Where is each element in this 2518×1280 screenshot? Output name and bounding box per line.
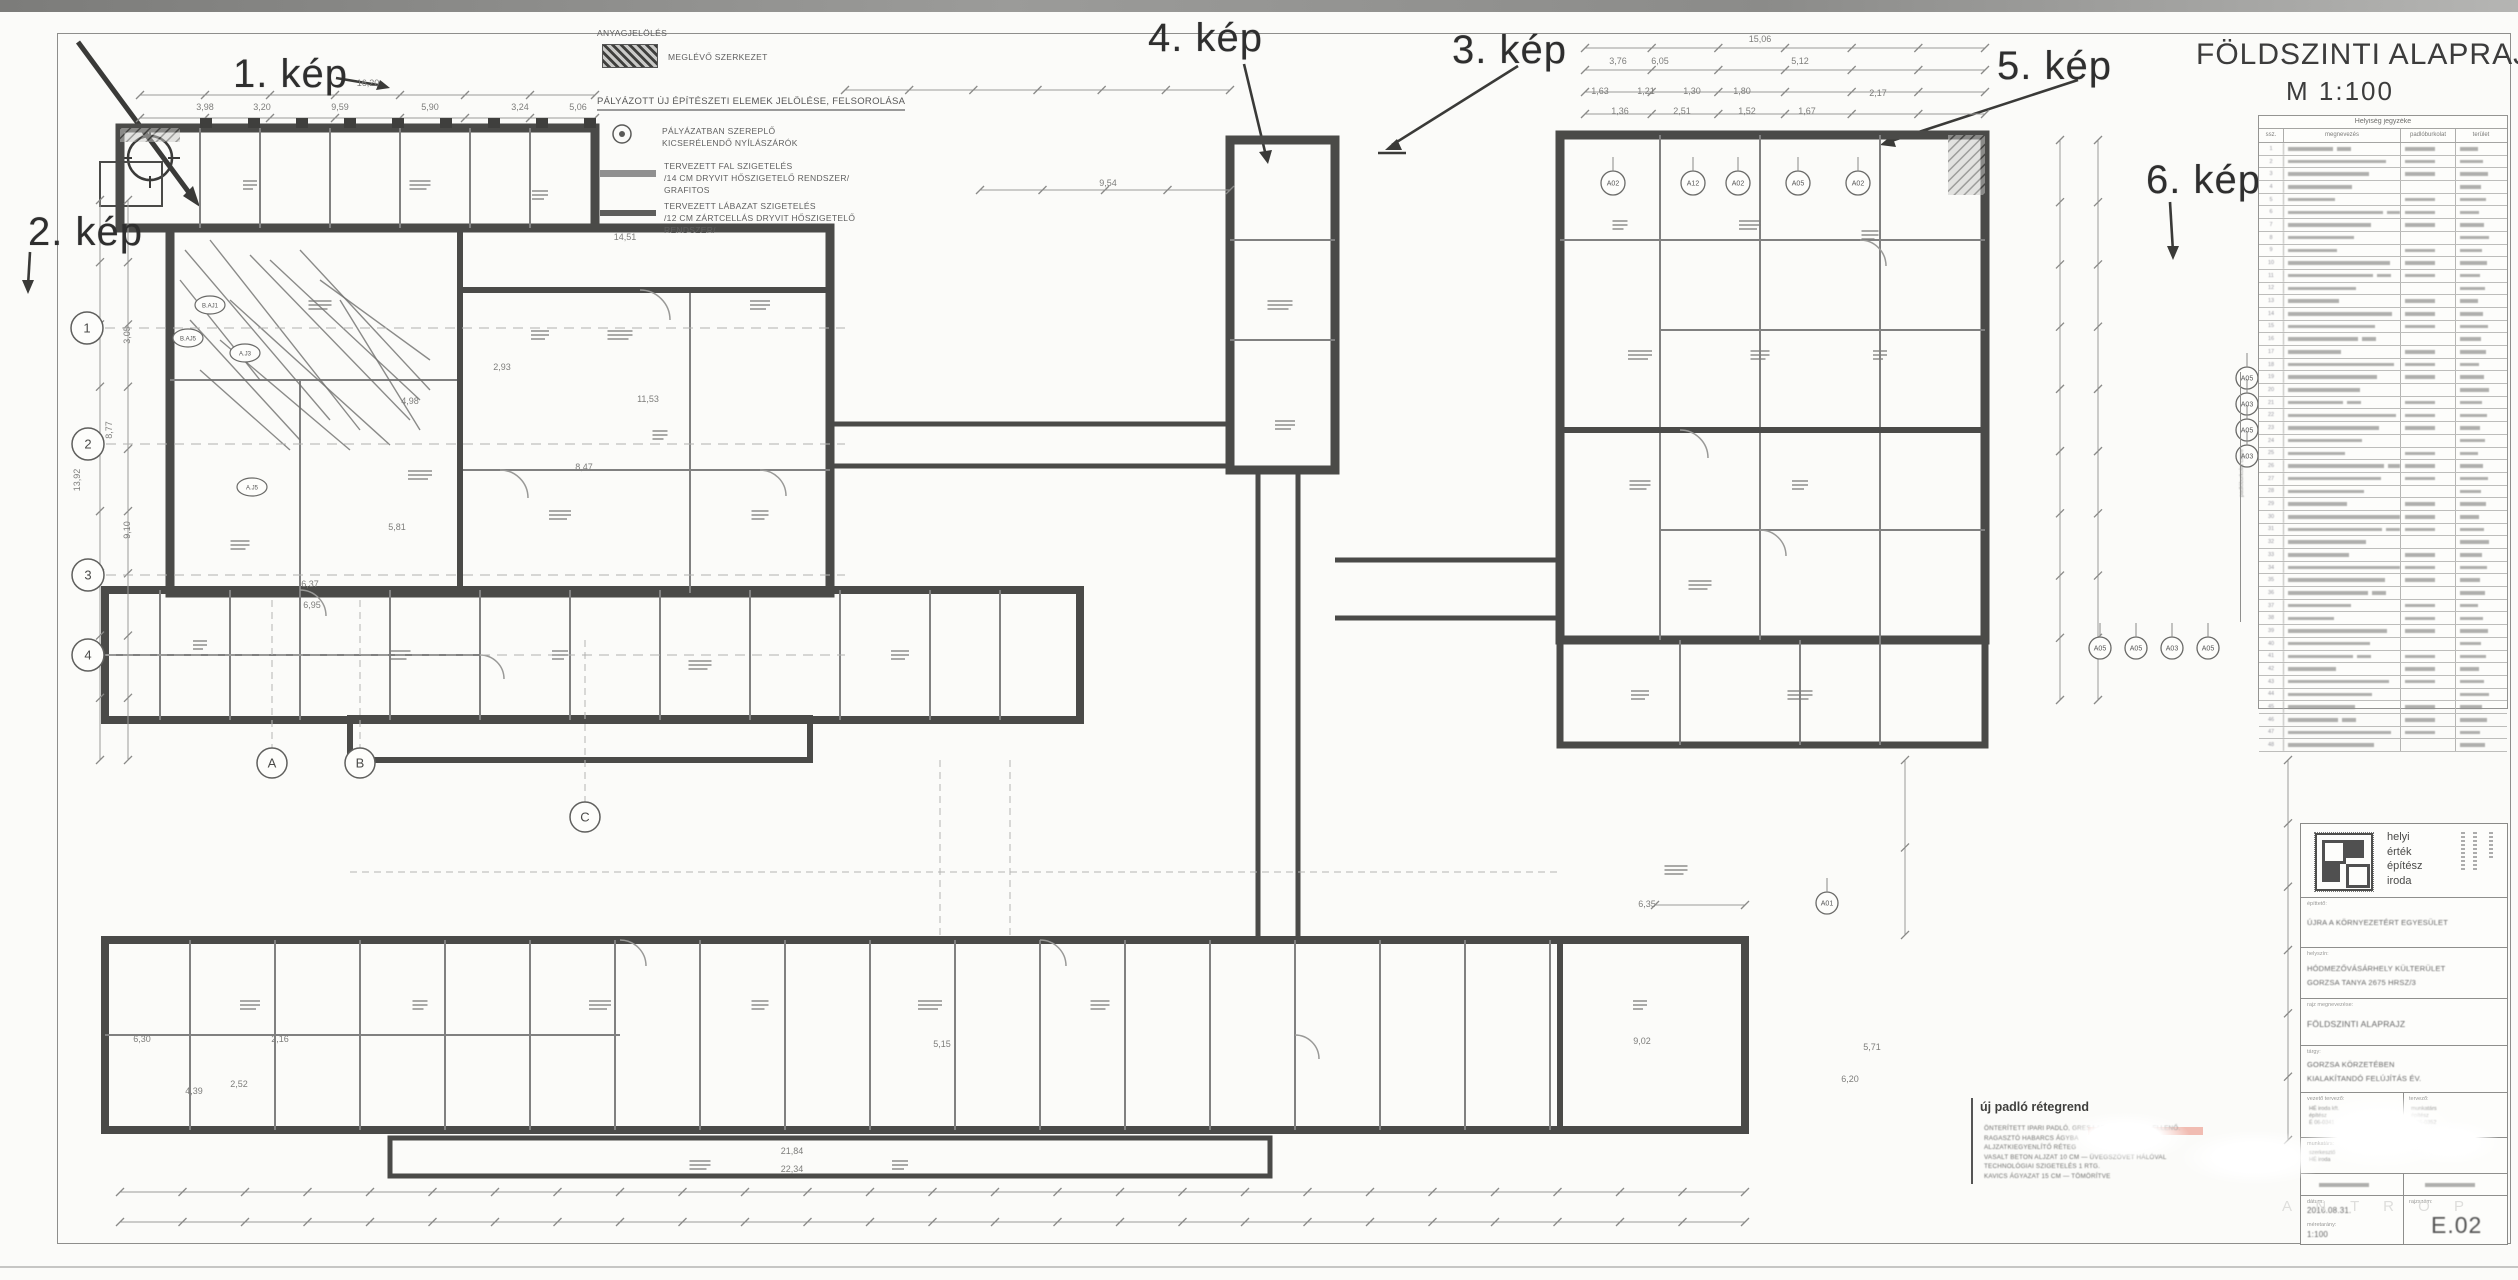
room-label-stub [1665,869,1688,871]
window-marker-label: A01 [1821,901,1834,908]
title-block: helyiérték építésziroda építtető: ÚJRA A… [2300,823,2508,1245]
table-row: 28 [2259,486,2507,499]
dimension-label: 5,15 [933,1039,951,1049]
col-area: terület [2456,129,2506,142]
interior-thick-walls [460,228,1985,1130]
room-label-stub [1739,220,1761,222]
room-schedule-rows: 1 2 3 4 5 6 7 8 9 10 11 12 13 [2259,143,2507,752]
associate-lines: szerkesztőHÉ iroda [2309,1150,2335,1164]
room-label-stub [891,654,909,656]
room-label-stub [653,434,668,436]
notes-line: ÖNTERÍTETT IPARI PADLÓ, GRES LAP BURKOLA… [1984,1125,2180,1132]
room-label-stub [231,540,250,542]
room-label-stub [1689,588,1708,590]
room-label-stub [1633,1004,1647,1006]
logo-side-text3 [2489,832,2493,860]
architect-lines: munkatársépítészÉ 06-0352 [2411,1106,2437,1127]
room-label-stub [1630,484,1651,486]
window-marker-label: A02 [1732,181,1745,188]
room-label-stub [1268,304,1293,306]
replaced-opening-symbol-icon [608,120,636,148]
room-label-stub [1268,300,1293,302]
room-label-stub [689,668,708,670]
pilaster [248,118,260,128]
room-label-stub [1788,694,1813,696]
room-label-stub [408,478,428,480]
room-label-stub [1792,488,1804,490]
wall-hatch-sample [1948,135,1985,195]
room-label-stub [193,648,203,650]
room-label-stub [752,514,769,516]
legend-existing-label: MEGLÉVŐ SZERKEZET [668,52,768,62]
table-row: 6 [2259,206,2507,219]
table-row: 39 [2259,625,2507,638]
room-label-stub [1630,488,1647,490]
logo-side-text [2461,832,2465,872]
room-label-stub [1628,354,1652,356]
dimension-label: 4,39 [185,1086,203,1096]
room-label-stub [1275,424,1295,426]
schedule-group-bracket: padlóburkolat csere [2240,372,2255,622]
room-label-stub [1633,1000,1647,1002]
client-label: építtető: [2307,901,2327,907]
table-row: 20 [2259,384,2507,397]
table-row: 5 [2259,194,2507,207]
window-marker-label: A05 [1792,181,1805,188]
legend-wall-line2: /14 CM DRYVIT HŐSZIGETELŐ RENDSZER/ [664,173,849,183]
room-label-stub [589,1008,607,1010]
room-label-stub [752,510,769,512]
dimension-label: 5,81 [388,522,406,532]
existing-structure-swatch-icon [602,44,658,68]
room-label-stub [1739,224,1761,226]
room-label-stub [1665,873,1684,875]
room-label-stub [1689,580,1712,582]
building-bottom-walls [105,940,1745,1176]
room-label-stub [689,664,712,666]
room-label-stub [1862,238,1875,240]
table-row: 43 [2259,676,2507,689]
room-label-stub [240,1008,256,1010]
room-label-stub [410,180,431,182]
table-row: 19 [2259,371,2507,384]
pilaster [344,118,356,128]
grid-bubble-label: B [356,756,365,771]
table-row: 23 [2259,422,2507,435]
dimension-label: 6,95 [303,600,321,610]
col-number: ssz. [2259,129,2284,142]
subject-label: tárgy: [2307,1049,2321,1055]
room-label-stub [690,1168,707,1170]
grid-bubble-label: C [580,810,589,825]
room-label-stub [532,190,548,192]
scanned-floorplan-sheet: 16,203,983,209,595,903,245,069,5414,5115… [0,0,2518,1280]
pilaster [584,118,596,128]
pilaster [440,118,452,128]
dimension-label: 8,77 [104,421,114,439]
room-label-stub [408,470,432,472]
room-label-stub [1739,228,1757,230]
table-row: 48 [2259,739,2507,752]
dimension-label: 6,05 [1651,56,1669,66]
pilaster [488,118,500,128]
legend-wall-line3: GRAFITOS [664,185,710,195]
room-label-stub [750,304,770,306]
title-block-associate-row: munkatárs: szerkesztőHÉ iroda [2301,1138,2507,1174]
room-label-stub [690,1164,711,1166]
window-markers: A02A12A02A05A02A05A03A05A03A05A05A03A05A… [173,157,2258,914]
room-label-stub [1751,350,1770,352]
table-row: 45 [2259,701,2507,714]
scale-value: 1:100 [2307,1230,2328,1239]
dimension-label: 1,80 [1733,86,1751,96]
table-row: 33 [2259,549,2507,562]
room-label-stub [240,1000,260,1002]
room-label-stub [1628,350,1652,352]
table-row: 3 [2259,168,2507,181]
room-label-stub [750,308,766,310]
room-label-stub [532,198,544,200]
room-label-stub [243,188,253,190]
room-label-stub [1873,358,1883,360]
room-label-stub [1091,1008,1106,1010]
notes-line: TECHNOLÓGIAI SZIGETELÉS 1 RTG. [1984,1163,2100,1170]
drawing-number: E.02 [2431,1212,2482,1239]
room-label-stub [309,300,332,302]
room-label-stub [1613,224,1628,226]
sheet-scale: M 1:100 [2286,76,2394,107]
room-label-stub [752,1000,769,1002]
scale-label: méretarány: [2307,1222,2336,1228]
table-row: 17 [2259,346,2507,359]
dimension-label: 1,36 [1611,106,1629,116]
grid-bubble-label: 1 [83,321,90,336]
site-line2: GORZSA TANYA 2675 HRSZ/3 [2307,978,2416,987]
door-marker-label: B.AJ1 [202,304,219,310]
dimension-label: 1,30 [1683,86,1701,96]
room-label-stub [1751,354,1770,356]
room-label-stub [243,180,257,182]
grid-bubble-label: A [268,756,277,771]
table-row: 26 [2259,460,2507,473]
dimension-label: 3,24 [511,102,529,112]
col-name: megnevezés [2284,129,2401,142]
drawing-name: FÖLDSZINTI ALAPRAJZ [2307,1019,2405,1029]
table-row: 31 [2259,524,2507,537]
notes-line: VASALT BETON ALJZAT 10 CM — ÜVEGSZÖVET H… [1984,1154,2167,1161]
existing-mark [320,280,430,360]
table-row: 44 [2259,689,2507,702]
title-block-site-row: helyszín: HÓDMEZŐVÁSÁRHELY KÜLTERÜLET GO… [2301,948,2507,999]
room-label-stub [549,510,571,512]
room-label-stub [413,1004,428,1006]
title-block-client-row: építtető: ÚJRA A KÖRNYEZETÉRT EGYESÜLET [2301,898,2507,948]
dimension-label: 3,20 [253,102,271,112]
room-label-stub [193,644,207,646]
room-label-stub [653,438,664,440]
legend-openings-line1: PÁLYÁZATBAN SZEREPLŐ [662,126,775,136]
table-row: 29 [2259,498,2507,511]
room-label-stub [193,640,207,642]
room-label-stub [1665,865,1688,867]
room-label-stub [1628,358,1648,360]
room-label-stub [918,1008,938,1010]
legend-openings-line2: KICSERÉLENDŐ NYÍLÁSZÁRÓK [662,138,798,148]
room-label-stub [549,518,567,520]
table-row: 11 [2259,270,2507,283]
title-block-drawing-row: rajz megnevezése: FÖLDSZINTI ALAPRAJZ [2301,999,2507,1046]
room-label-stub [608,338,629,340]
room-label-stub [390,650,411,652]
room-label-stub [243,184,257,186]
title-block-sign-row [2301,1174,2507,1196]
office-logo-text: helyiérték építésziroda [2387,830,2422,888]
room-label-stub [1862,230,1879,232]
table-row: 25 [2259,448,2507,461]
dimension-label: 1,21 [1637,86,1655,96]
dimension-label: 3,05 [122,326,132,344]
table-row: 4 [2259,181,2507,194]
associate-label: munkatárs: [2307,1141,2334,1147]
existing-mark [200,370,290,450]
room-label-stub [891,658,905,660]
room-label-stub [1689,584,1712,586]
annotation-kep-5: 5. kép [1997,44,2112,89]
table-row: 40 [2259,638,2507,651]
dimension-label: 8,47 [575,462,593,472]
window-marker-label: A05 [2094,646,2107,653]
room-label-stub [1873,350,1887,352]
room-label-stub [413,1000,428,1002]
room-label-stub [1275,428,1291,430]
dimension-label: 9,59 [331,102,349,112]
annotation-kep-6: 6. kép [2146,158,2261,203]
dimension-label: 2,17 [1869,88,1887,98]
table-row: 46 [2259,714,2507,727]
existing-mark [210,240,360,430]
window-marker-label: A03 [2166,646,2179,653]
room-label-stub [1792,480,1808,482]
room-label-stub [752,1004,769,1006]
room-label-stub [918,1000,942,1002]
room-label-stub [1613,228,1624,230]
room-label-stub [1091,1004,1110,1006]
dimension-label: 5,90 [421,102,439,112]
room-label-stub [309,308,328,310]
legend-plinth-line2: /12 CM ZÁRTCELLÁS DRYVIT HŐSZIGETELŐ [664,213,855,223]
table-row: 7 [2259,219,2507,232]
table-row: 18 [2259,359,2507,372]
room-label-stub [532,194,548,196]
architect-label: tervező: [2409,1096,2429,1102]
table-row: 34 [2259,562,2507,575]
sheet-title: FÖLDSZINTI ALAPRAJZ [2196,38,2518,72]
annotation-kep-3: 3. kép [1452,28,1567,73]
dimension-label: 2,16 [271,1034,289,1044]
interior-partitions [105,128,1985,1130]
grid-bubble-label: 4 [84,648,91,663]
dimension-label: 2,93 [493,362,511,372]
dimension-label: 5,12 [1791,56,1809,66]
room-label-stub [1631,698,1645,700]
room-label-stub [1630,480,1651,482]
room-label-stub [309,304,332,306]
dimension-label: 3,98 [196,102,214,112]
table-row: 38 [2259,612,2507,625]
table-row: 30 [2259,511,2507,524]
room-label-stub [1633,1008,1643,1010]
room-label-stub [690,1160,711,1162]
existing-structure-marks [180,240,430,450]
schedule-side-label: padlóburkolat csere [2239,449,2245,497]
designer-label: vezető tervező: [2307,1096,2344,1102]
table-row: 1 [2259,143,2507,156]
dimension-label: 6,20 [1841,1074,1859,1084]
notes-bracket-line [1971,1098,1973,1184]
dimension-label: 1,67 [1798,106,1816,116]
table-row: 37 [2259,600,2507,613]
dimension-label: 13,92 [72,469,82,492]
window-marker-label: A02 [1852,181,1865,188]
dimension-label: 5,06 [569,102,587,112]
table-row: 14 [2259,308,2507,321]
window-marker-label: A02 [1607,181,1620,188]
facade-pilasters [200,118,596,128]
room-label-stub [231,544,250,546]
annotation-kep-4: 4. kép [1148,16,1263,61]
dimension-label: 14,51 [614,232,637,242]
room-label-stub [1873,354,1887,356]
room-label-stub [552,658,564,660]
pilaster [296,118,308,128]
table-row: 16 [2259,333,2507,346]
room-label-stub [918,1004,942,1006]
table-row: 27 [2259,473,2507,486]
room-label-stub [892,1164,908,1166]
dimension-label: 5,71 [1863,1042,1881,1052]
table-row: 2 [2259,156,2507,169]
existing-mark [250,255,410,420]
table-row: 24 [2259,435,2507,448]
room-label-stub [1631,690,1649,692]
dashed-centerlines [272,600,1560,940]
grid-bubble-label: 3 [84,568,91,583]
title-block-subject-row: tárgy: GORZSA KÖRZETÉBEN KIALAKÍTANDÓ FE… [2301,1046,2507,1093]
table-row: 15 [2259,321,2507,334]
room-label-stub [1268,308,1289,310]
wall-insulation-swatch-icon [600,170,656,177]
title-block-designers-row: vezető tervező: HÉ iroda kft.építészÉ 06… [2301,1093,2507,1138]
dimension-label: 16,20 [357,78,380,88]
plinth-insulation-swatch-icon [600,210,656,216]
dimension-label: 3,76 [1609,56,1627,66]
legend-materials-heading: ANYAGJELÖLÉS [597,28,667,38]
annotation-kep-1: 1. kép [233,52,348,97]
room-label-stub [892,1168,904,1170]
room-label-stub [1792,484,1808,486]
room-label-stub [1091,1000,1110,1002]
dimension-label: 4,98 [401,396,419,406]
room-label-stub [240,1004,260,1006]
dimension-label: 21,84 [781,1146,804,1156]
room-label-stub [549,514,571,516]
site-label: helyszín: [2307,951,2329,957]
window-marker-label: A12 [1687,181,1700,188]
dimension-label: 9,10 [122,521,132,539]
site-line1: HÓDMEZŐVÁSÁRHELY KÜLTERÜLET [2307,964,2445,973]
dimension-label: 1,63 [1591,86,1609,96]
room-label-stub [589,1004,611,1006]
building-left-walls [100,128,1335,940]
room-label-stub [531,338,545,340]
room-label-stub [752,518,765,520]
notes-line: KAVICS ÁGYAZAT 15 CM — TÖMÖRÍTVE [1984,1173,2111,1180]
room-label-stub [408,474,432,476]
legend-plinth-line3: RENDSZER/ [664,225,716,235]
room-label-stub [531,330,549,332]
table-row: 36 [2259,587,2507,600]
room-label-stub [1631,694,1649,696]
room-label-stub [608,334,633,336]
table-row: 8 [2259,232,2507,245]
table-row: 35 [2259,574,2507,587]
room-label-stub [231,548,246,550]
room-label-stub [410,188,427,190]
title-block-logo-row: helyiérték építésziroda [2301,824,2507,898]
legend-new-elements-heading: PÁLYÁZOTT ÚJ ÉPÍTÉSZETI ELEMEK JELÖLÉSE,… [597,96,905,111]
pilaster [200,118,212,128]
designer-lines: HÉ iroda kft.építészÉ 06-0341 [2309,1106,2339,1127]
room-label-stub [653,430,668,432]
wall-hatch-sample2 [120,128,180,142]
annotation-kep-2: 2. kép [28,210,143,255]
drawing-label: rajz megnevezése: [2307,1002,2353,1008]
grid-bubble-label: 2 [84,437,91,452]
table-row: 41 [2259,651,2507,664]
dimension-label: 15,06 [1749,34,1772,44]
window-marker-label: A05 [2130,646,2143,653]
watermark-remnant: A N T R O P [2282,1198,2474,1215]
room-label-stub [1862,234,1879,236]
dimension-label: 6,35 [1638,899,1656,909]
client-value: ÚJRA A KÖRNYEZETÉRT EGYESÜLET [2307,918,2448,927]
room-label-stub [750,300,770,302]
subject-line2: KIALAKÍTANDÓ FELÚJÍTÁS ÉV. [2307,1074,2421,1083]
room-label-stub [1788,698,1809,700]
table-row: 21 [2259,397,2507,410]
notes-heading: új padló rétegrend [1980,1100,2089,1114]
room-label-stub [891,650,909,652]
dimension-label: 6,30 [133,1034,151,1044]
table-row: 47 [2259,727,2507,740]
notes-line: RAGASZTÓ HABARCS ÁGYBA [1984,1135,2079,1142]
dimension-label: 11,53 [637,394,659,404]
floor-plan-drawing: 16,203,983,209,595,903,245,069,5414,5115… [0,0,2518,1280]
notes-line: ALJZATKIEGYENLÍTŐ RÉTEG [1984,1144,2076,1151]
room-label-stub [589,1000,611,1002]
room-label-stub [608,330,633,332]
room-schedule-table: Helyiség jegyzéke ssz. megnevezés padlób… [2258,115,2508,709]
existing-mark [300,250,430,390]
table-row: 10 [2259,257,2507,270]
dimension-label: 9,02 [1633,1036,1651,1046]
room-label-stub [1613,220,1628,222]
door-marker-label: B.AJ5 [180,337,197,343]
room-schedule-header: ssz. megnevezés padlóburkolat terület [2259,129,2507,143]
table-row: 42 [2259,663,2507,676]
legend-wall-line1: TERVEZETT FAL SZIGETELÉS [664,161,792,171]
room-label-stub [892,1160,908,1162]
